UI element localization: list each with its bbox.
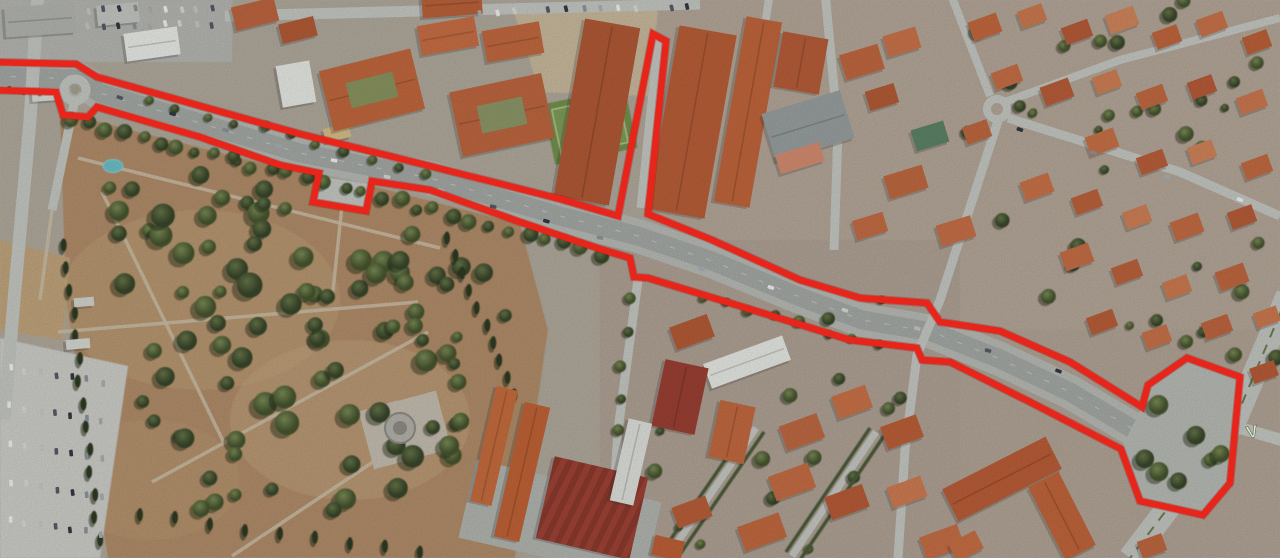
- satellite-imagery: V: [0, 0, 1280, 558]
- map-canvas[interactable]: V: [0, 0, 1280, 558]
